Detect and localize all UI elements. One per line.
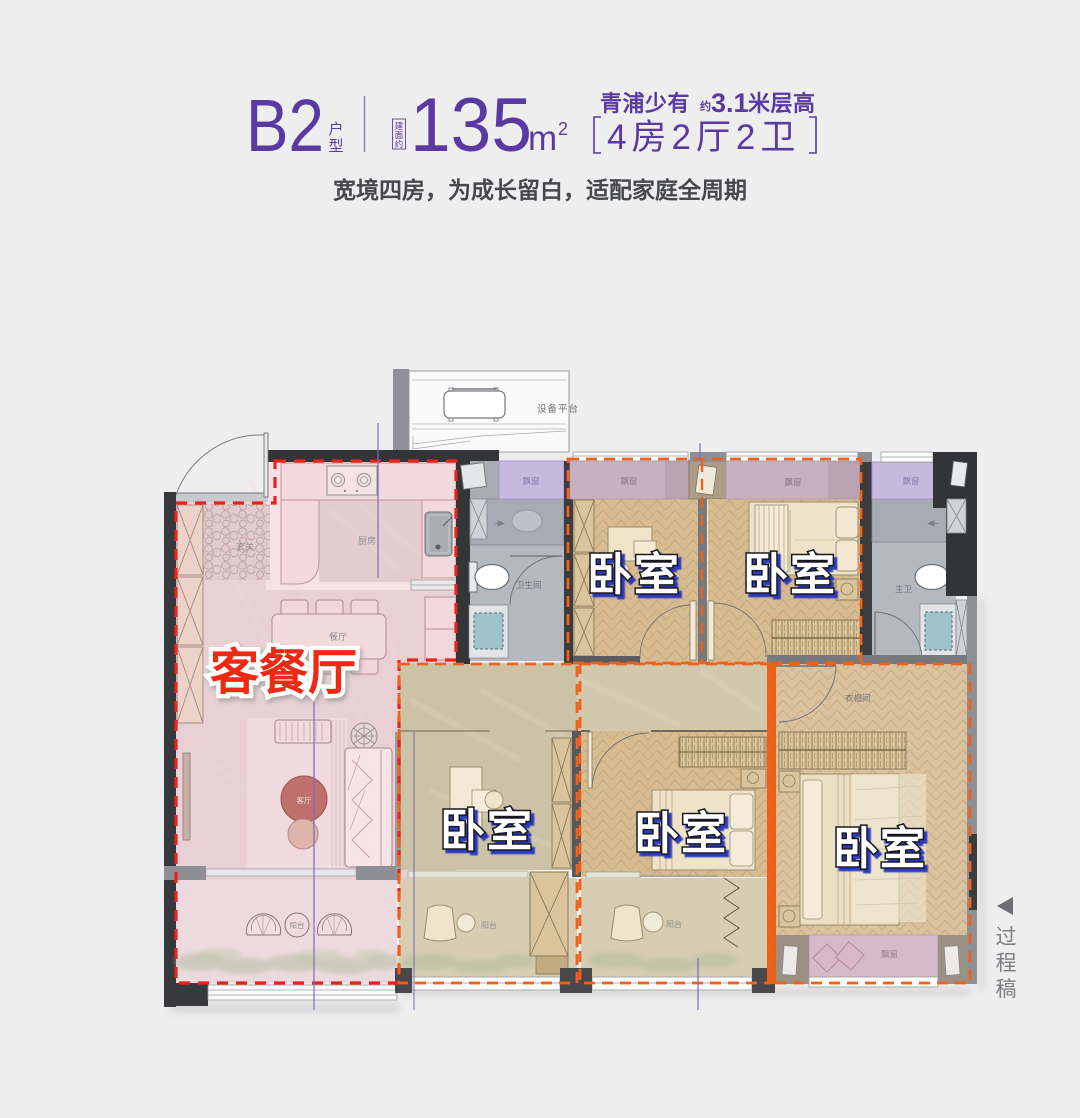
svg-text:B2: B2	[246, 84, 324, 167]
svg-text:2: 2	[558, 119, 568, 139]
svg-text:卧室: 卧室	[634, 808, 728, 859]
svg-text:飘窗: 飘窗	[881, 949, 898, 959]
svg-text:主卫: 主卫	[895, 584, 913, 594]
svg-text:阳台: 阳台	[290, 920, 305, 930]
svg-text:卫生间: 卫生间	[516, 580, 542, 590]
svg-text:阳台: 阳台	[481, 920, 497, 930]
svg-text:稿: 稿	[996, 978, 1017, 1001]
svg-text:餐厅: 餐厅	[329, 631, 347, 642]
svg-text:过: 过	[996, 926, 1017, 949]
svg-text:程: 程	[996, 952, 1017, 975]
svg-text:户: 户	[328, 121, 343, 138]
svg-text:设备平台: 设备平台	[537, 403, 579, 415]
svg-text:飘窗: 飘窗	[784, 477, 801, 487]
svg-text:3.1: 3.1	[711, 88, 749, 118]
svg-text:飘窗: 飘窗	[522, 476, 539, 486]
svg-text:厨房: 厨房	[358, 535, 376, 546]
svg-text:阳台: 阳台	[666, 919, 682, 929]
svg-text:玄关: 玄关	[236, 541, 254, 552]
svg-text:客餐厅: 客餐厅	[210, 646, 357, 700]
svg-text:客厅: 客厅	[297, 795, 312, 805]
svg-text:约: 约	[395, 139, 404, 149]
svg-text:飘窗: 飘窗	[620, 476, 637, 486]
svg-text:飘窗: 飘窗	[902, 476, 919, 486]
svg-text:m: m	[528, 119, 557, 158]
svg-text:卧室: 卧室	[587, 549, 681, 600]
svg-text:型: 型	[328, 138, 343, 155]
svg-text:卧室: 卧室	[440, 805, 534, 856]
svg-text:卧室: 卧室	[833, 823, 927, 874]
svg-text:135: 135	[410, 83, 532, 168]
svg-text:米层高: 米层高	[748, 91, 816, 116]
svg-text:卧室: 卧室	[743, 549, 837, 600]
svg-text:约: 约	[700, 99, 711, 113]
svg-text:衣帽间: 衣帽间	[845, 693, 871, 703]
svg-text:宽境四房，为成长留白，适配家庭全周期: 宽境四房，为成长留白，适配家庭全周期	[333, 177, 747, 203]
svg-text:4房2厅2卫: 4房2厅2卫	[607, 118, 800, 157]
svg-text:青浦少有: 青浦少有	[600, 91, 690, 116]
